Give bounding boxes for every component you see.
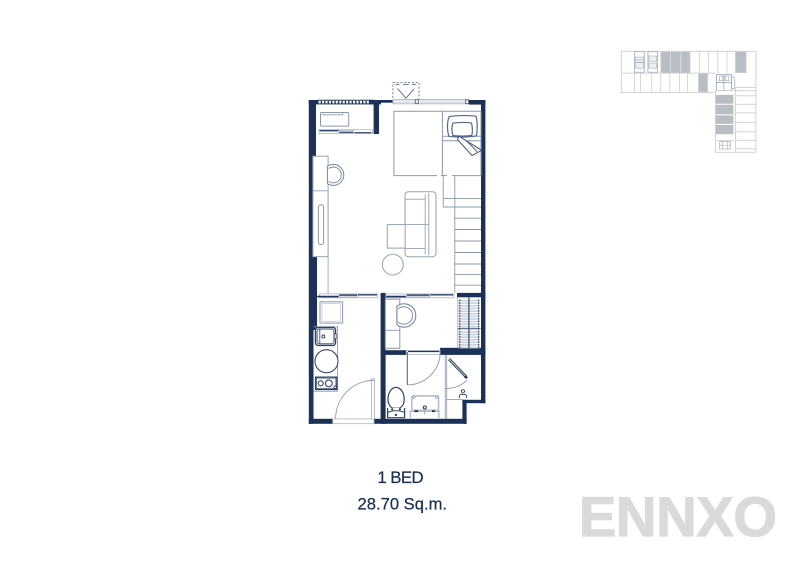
svg-text:1 BED: 1 BED: [377, 468, 423, 487]
svg-text:28.70 Sq.m.: 28.70 Sq.m.: [358, 495, 447, 514]
svg-text:ENNXO: ENNXO: [579, 485, 777, 548]
